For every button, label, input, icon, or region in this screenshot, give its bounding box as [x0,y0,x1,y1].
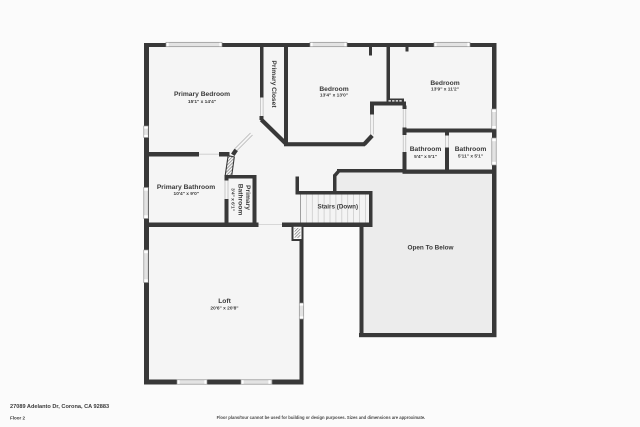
svg-text:Bathroom: Bathroom [236,184,243,216]
svg-text:13'4" x 13'0": 13'4" x 13'0" [320,93,348,99]
svg-text:20'6" x 20'8": 20'6" x 20'8" [210,305,238,311]
svg-text:13'9" x 11'2": 13'9" x 11'2" [431,86,459,92]
svg-text:10'4" x 9'0": 10'4" x 9'0" [174,191,200,197]
svg-text:Bedroom: Bedroom [430,80,459,87]
svg-text:Stairs (Down): Stairs (Down) [318,204,359,211]
svg-text:Bathroom: Bathroom [410,146,442,153]
svg-text:Primary Bathroom: Primary Bathroom [157,184,215,191]
svg-text:27089 Adelanto Dr, Corona, CA: 27089 Adelanto Dr, Corona, CA 92883 [10,404,109,410]
svg-text:Primary Closet: Primary Closet [270,60,277,108]
svg-text:Bathroom: Bathroom [455,146,487,153]
svg-text:Primary Bedroom: Primary Bedroom [174,91,230,98]
svg-text:15'1" x 14'4": 15'1" x 14'4" [188,99,216,105]
svg-text:Bedroom: Bedroom [319,86,348,93]
svg-text:Open To Below: Open To Below [407,244,453,251]
svg-text:5'4" x 5'1": 5'4" x 5'1" [414,154,437,160]
svg-text:Floor 2: Floor 2 [10,415,25,420]
svg-text:3'4" x 6'1": 3'4" x 6'1" [230,188,236,211]
svg-text:Floor plans/tour cannot be use: Floor plans/tour cannot be used for buil… [217,415,426,420]
svg-text:5'11" x 5'1": 5'11" x 5'1" [458,153,483,159]
svg-text:Loft: Loft [218,298,231,305]
svg-text:Primary: Primary [244,185,251,210]
